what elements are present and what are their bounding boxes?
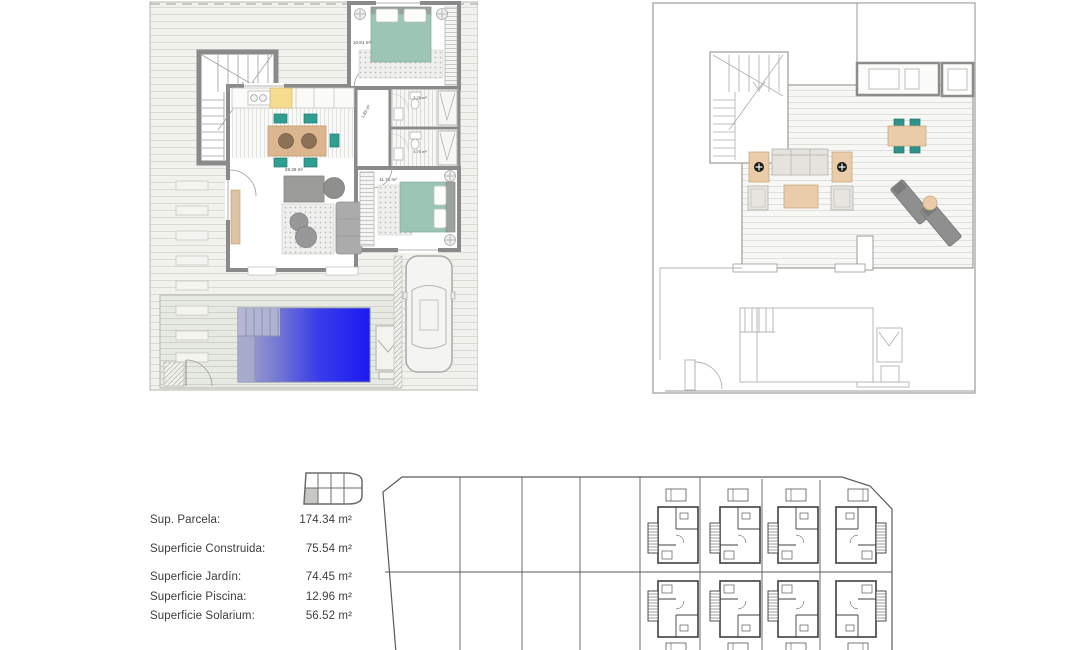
measure-label: Superficie Piscina:	[150, 591, 247, 604]
table-row: Superficie Jardín: 74.45 m²	[150, 571, 352, 584]
label-living-kitchen: 28.36 m²	[285, 167, 304, 172]
label-bedroom-right: 11.71 m²	[379, 177, 397, 182]
sideboard	[231, 190, 240, 244]
measure-label: Superficie Construida:	[150, 543, 265, 556]
measure-label: Superficie Jardín:	[150, 571, 241, 584]
measure-value: 56.52 m²	[306, 610, 352, 623]
label-bathroom-bottom: 3.75 m²	[413, 149, 427, 154]
sofa	[336, 202, 362, 254]
locator-highlight-cell	[304, 488, 318, 504]
measure-value: 174.34 m²	[299, 514, 352, 527]
dining-table	[888, 126, 926, 146]
label-bedroom-top: 10.81 m²	[353, 40, 372, 45]
coffee-table	[784, 185, 818, 208]
measure-value: 74.45 m²	[306, 571, 352, 584]
car	[403, 256, 455, 372]
swimming-pool	[238, 308, 370, 382]
measure-value: 75.54 m²	[306, 543, 352, 556]
table-row: Sup. Parcela: 174.34 m²	[150, 514, 352, 527]
measure-label: Sup. Parcela:	[150, 514, 220, 527]
wardrobe	[360, 172, 374, 246]
terrace-step	[835, 264, 865, 272]
measure-label: Superficie Solarium:	[150, 610, 255, 623]
bathroom-bottom	[392, 130, 457, 166]
floor-plan-sheet: 28.36 m² 1.83 m² 10.81 m² 3.75 m² 3.75 m…	[0, 0, 1070, 650]
label-bathroom-top: 3.75 m²	[413, 95, 427, 100]
parking-divider	[394, 256, 402, 388]
table-row: Superficie Construida: 75.54 m²	[150, 543, 352, 556]
outdoor-sofa	[772, 149, 828, 175]
table-row: Superficie Solarium: 56.52 m²	[150, 610, 352, 623]
roof-void	[857, 3, 975, 63]
dining-table	[268, 126, 326, 156]
site-plan	[380, 465, 1070, 650]
round-chair	[324, 178, 345, 199]
hall-room	[356, 86, 390, 168]
surface-measurements-table: Sup. Parcela: 174.34 m² Superficie Const…	[150, 514, 352, 623]
tv-cabinet	[284, 176, 324, 202]
locator-icon	[298, 468, 370, 510]
stair-bulkhead	[857, 63, 973, 96]
measure-value: 12.96 m²	[306, 591, 352, 604]
staircase	[710, 52, 788, 163]
table-row: Superficie Piscina: 12.96 m²	[150, 591, 352, 604]
cooktop	[270, 88, 292, 108]
wardrobe	[445, 7, 457, 85]
solarium-floor-plan	[645, 0, 1000, 432]
ground-floor-plan: 28.36 m² 1.83 m² 10.81 m² 3.75 m² 3.75 m…	[148, 0, 478, 395]
side-table	[923, 196, 937, 210]
